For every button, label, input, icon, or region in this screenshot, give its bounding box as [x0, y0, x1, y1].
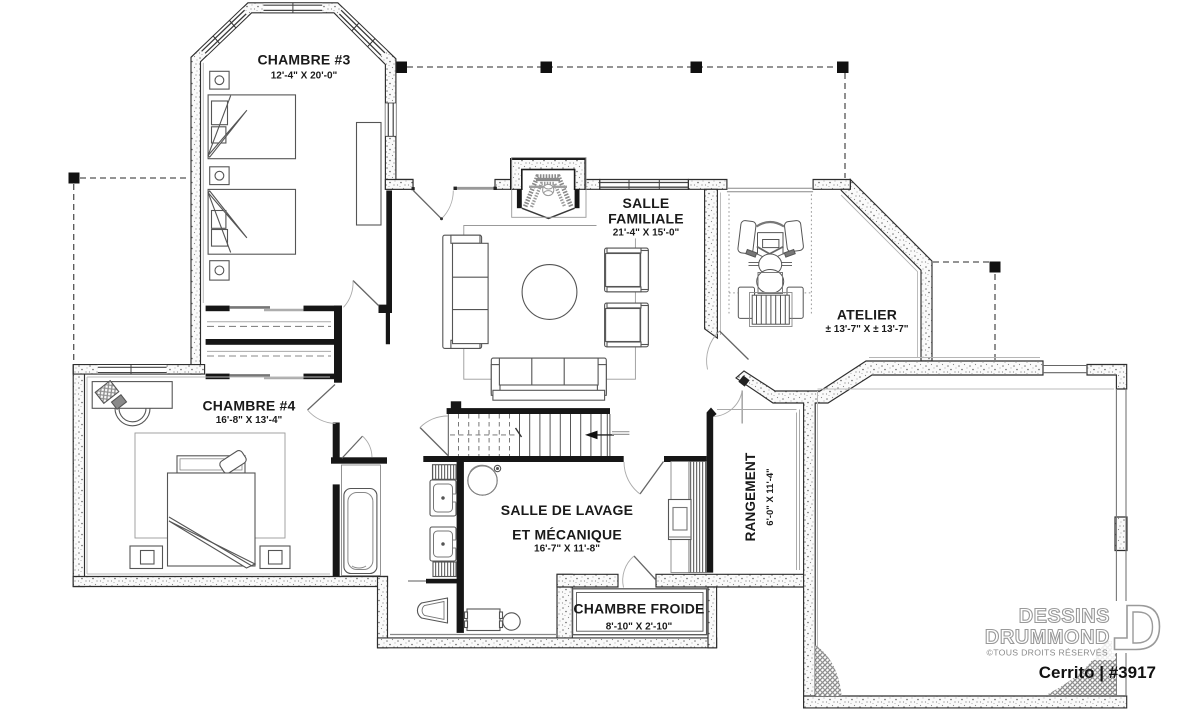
svg-text:CHAMBRE #3: CHAMBRE #3	[257, 52, 350, 68]
svg-text:16'-7" X 11'-8": 16'-7" X 11'-8"	[534, 544, 600, 555]
svg-text:SALLE: SALLE	[623, 195, 670, 211]
svg-text:8'-10" X 2'-10": 8'-10" X 2'-10"	[606, 622, 673, 633]
svg-text:DESSINS: DESSINS	[1019, 606, 1110, 628]
svg-text:± 13'-7" X ± 13'-7": ± 13'-7" X ± 13'-7"	[825, 324, 908, 335]
svg-text:ET MÉCANIQUE: ET MÉCANIQUE	[512, 527, 622, 543]
svg-text:RANGEMENT: RANGEMENT	[743, 452, 758, 541]
svg-text:21'-4" X 15'-0": 21'-4" X 15'-0"	[613, 228, 680, 239]
svg-text:©TOUS DROITS RÉSERVÉS: ©TOUS DROITS RÉSERVÉS	[987, 648, 1108, 658]
svg-text:Cerrito | #3917: Cerrito | #3917	[1039, 663, 1156, 682]
svg-text:16'-8" X 13'-4": 16'-8" X 13'-4"	[216, 415, 283, 426]
svg-text:CHAMBRE #4: CHAMBRE #4	[202, 398, 295, 414]
svg-text:ATELIER: ATELIER	[837, 307, 897, 323]
svg-text:CHAMBRE FROIDE: CHAMBRE FROIDE	[573, 601, 704, 617]
svg-text:FAMILIALE: FAMILIALE	[608, 211, 684, 227]
svg-text:12'-4" X 20'-0": 12'-4" X 20'-0"	[271, 71, 338, 82]
svg-text:6'-0" X 11'-4": 6'-0" X 11'-4"	[765, 468, 776, 525]
svg-text:SALLE DE LAVAGE: SALLE DE LAVAGE	[501, 502, 633, 518]
svg-text:DRUMMOND: DRUMMOND	[985, 627, 1110, 649]
